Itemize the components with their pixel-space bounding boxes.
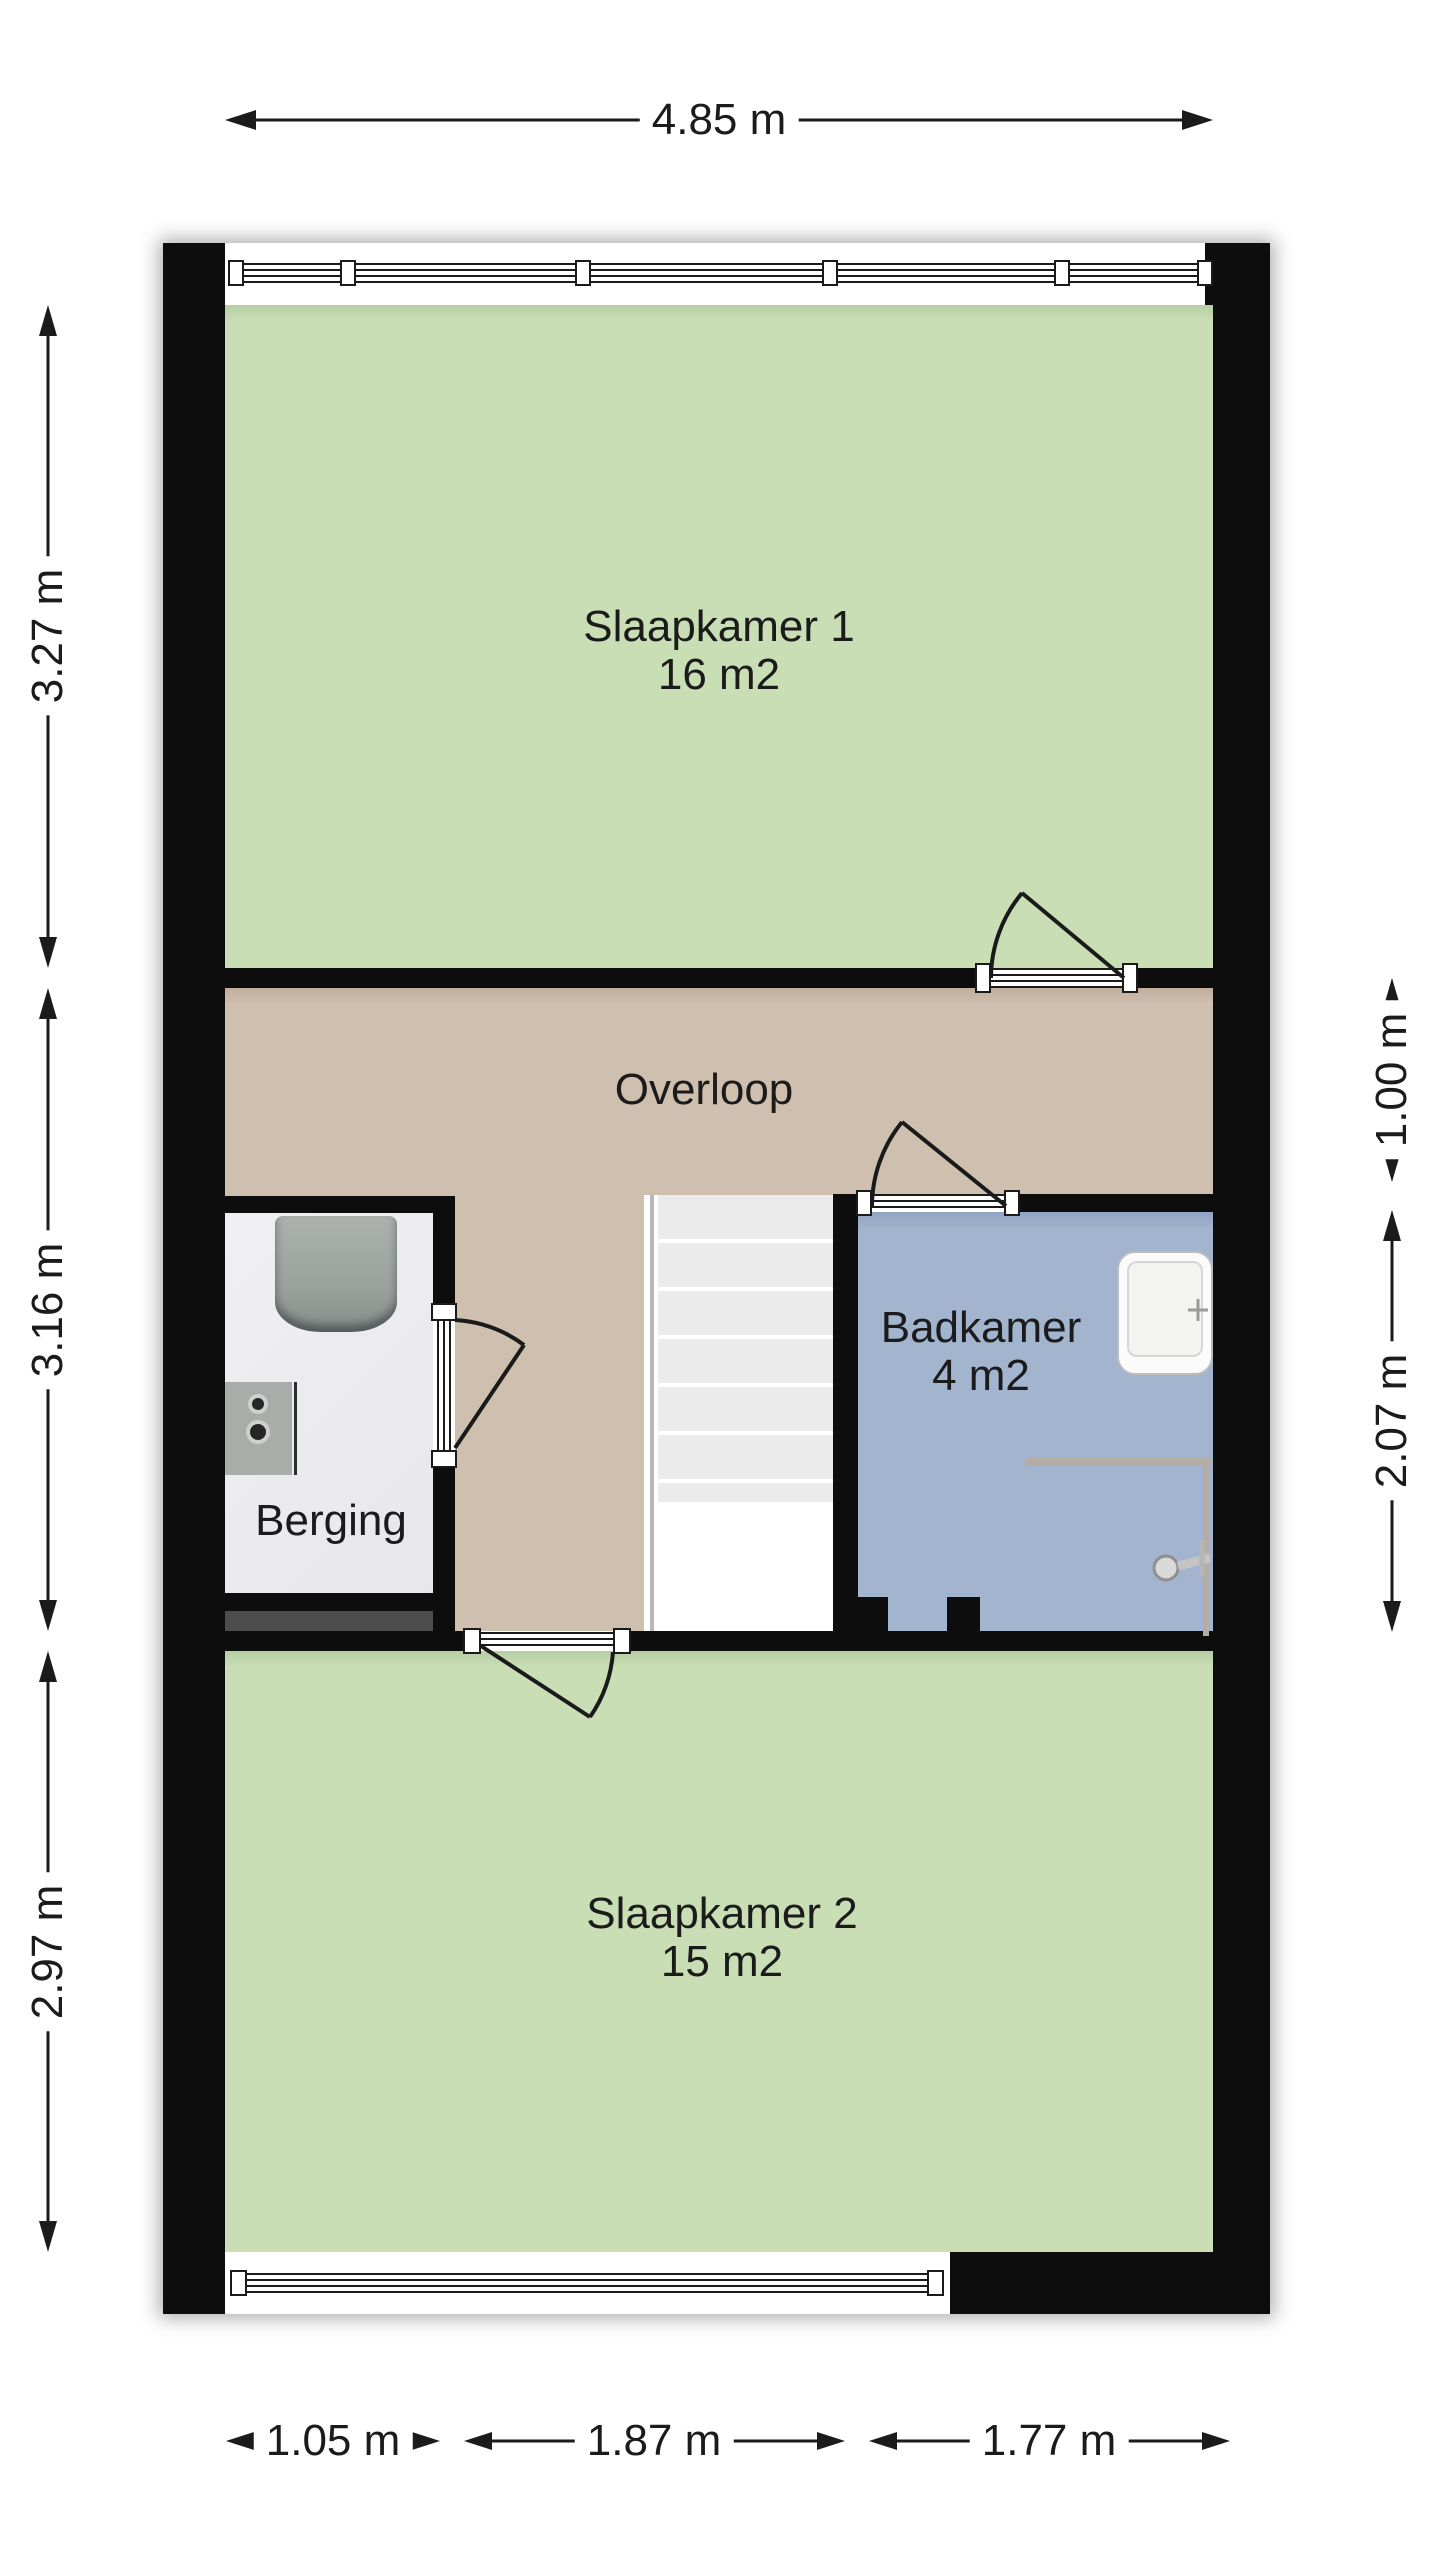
room-label-slaapkamer1: Slaapkamer 1 16 m2 — [583, 603, 854, 699]
dim-label-right-2: 2.07 m — [1368, 1342, 1416, 1501]
room-label-badkamer: Badkamer 4 m2 — [881, 1304, 1082, 1400]
towel-bar-icon — [1026, 1462, 1211, 1636]
dim-label-top: 4.85 m — [640, 96, 799, 144]
room-area: 16 m2 — [583, 651, 854, 699]
floorplan-canvas: Slaapkamer 1 16 m2 Overloop Berging Badk… — [0, 0, 1440, 2560]
room-area: 15 m2 — [586, 1938, 857, 1986]
shower-mixer-icon — [1154, 1540, 1210, 1580]
room-name: Slaapkamer 1 — [583, 603, 854, 651]
room-label-overloop: Overloop — [615, 1066, 794, 1114]
dim-label-right-1: 1.00 m — [1368, 1001, 1416, 1160]
door-swing-badkamer — [872, 1122, 1006, 1206]
dim-label-left-1: 3.27 m — [24, 557, 72, 716]
room-name: Badkamer — [881, 1304, 1082, 1352]
room-area: 4 m2 — [881, 1352, 1082, 1400]
dimension-arrows — [39, 110, 1401, 2450]
door-swing-slaapkamer1 — [991, 893, 1124, 978]
room-name: Berging — [255, 1497, 407, 1545]
dim-label-bottom-3: 1.77 m — [970, 2417, 1129, 2465]
dim-label-left-2: 3.16 m — [24, 1231, 72, 1390]
dim-label-left-3: 2.97 m — [24, 1873, 72, 2032]
door-swing-berging — [455, 1320, 524, 1448]
room-name: Overloop — [615, 1066, 794, 1114]
room-label-slaapkamer2: Slaapkamer 2 15 m2 — [586, 1890, 857, 1986]
faucet-icon — [1188, 1299, 1208, 1321]
door-swing-slaapkamer2 — [481, 1646, 613, 1717]
dim-label-bottom-2: 1.87 m — [575, 2417, 734, 2465]
room-name: Slaapkamer 2 — [586, 1890, 857, 1938]
room-label-berging: Berging — [255, 1497, 407, 1545]
annotation-overlay — [0, 0, 1440, 2560]
dim-label-bottom-1: 1.05 m — [254, 2417, 413, 2465]
